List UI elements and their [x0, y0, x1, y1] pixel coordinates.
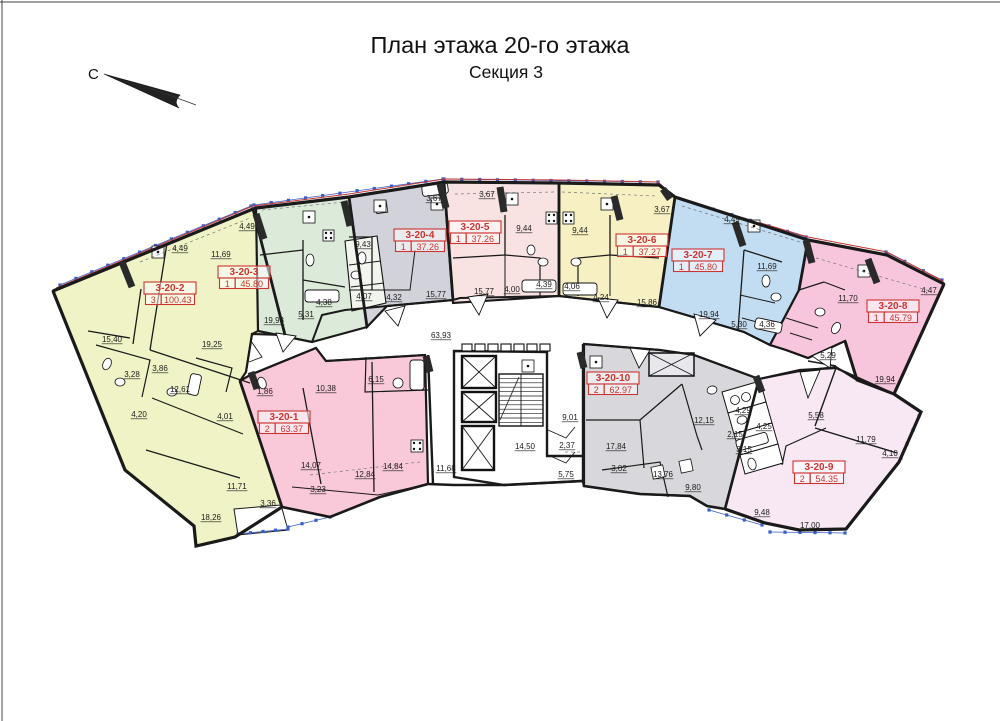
svg-text:15,77: 15,77 [426, 290, 447, 299]
svg-text:2: 2 [265, 424, 270, 434]
svg-text:9,43: 9,43 [355, 240, 371, 249]
svg-text:5,58: 5,58 [808, 411, 824, 420]
svg-text:4,07: 4,07 [356, 292, 372, 301]
svg-text:3,67: 3,67 [654, 205, 670, 214]
svg-text:19,93: 19,93 [264, 316, 285, 325]
svg-text:11,69: 11,69 [211, 250, 231, 259]
svg-text:4,25: 4,25 [756, 422, 772, 431]
svg-text:6,15: 6,15 [368, 375, 384, 384]
svg-text:План этажа 20-го этажа: План этажа 20-го этажа [371, 32, 631, 58]
svg-text:3: 3 [151, 295, 156, 305]
svg-text:13,76: 13,76 [653, 470, 674, 479]
svg-text:3,67: 3,67 [426, 194, 442, 203]
svg-text:4,49: 4,49 [724, 215, 740, 224]
svg-text:14,50: 14,50 [515, 442, 536, 451]
svg-text:4,29: 4,29 [735, 406, 751, 415]
svg-text:1: 1 [225, 279, 230, 289]
svg-text:12,84: 12,84 [355, 470, 376, 479]
svg-text:19,94: 19,94 [875, 375, 896, 384]
svg-text:4,32: 4,32 [386, 293, 402, 302]
svg-text:9,44: 9,44 [516, 224, 532, 233]
svg-text:37.27: 37.27 [639, 247, 662, 257]
svg-text:4,01: 4,01 [217, 412, 233, 421]
svg-text:3-20-5: 3-20-5 [461, 222, 490, 233]
svg-text:1: 1 [401, 242, 406, 252]
svg-text:62.97: 62.97 [610, 385, 633, 395]
svg-text:11,69: 11,69 [757, 262, 777, 271]
svg-text:3-20-3: 3-20-3 [230, 267, 259, 278]
svg-text:12,61: 12,61 [170, 385, 191, 394]
svg-text:4,06: 4,06 [564, 282, 580, 291]
svg-text:2: 2 [800, 474, 805, 484]
svg-text:14,84: 14,84 [383, 462, 404, 471]
svg-text:63.37: 63.37 [281, 424, 304, 434]
svg-text:3-20-6: 3-20-6 [628, 235, 657, 246]
svg-text:1: 1 [874, 313, 879, 323]
svg-text:45.79: 45.79 [890, 313, 913, 323]
svg-text:4,39: 4,39 [536, 280, 552, 289]
svg-text:3-20-4: 3-20-4 [406, 230, 435, 241]
svg-text:4,24: 4,24 [593, 293, 609, 302]
svg-text:37.26: 37.26 [417, 242, 440, 252]
svg-text:3-20-8: 3-20-8 [879, 301, 908, 312]
svg-text:5,30: 5,30 [731, 320, 747, 329]
svg-text:2,37: 2,37 [559, 441, 575, 450]
svg-text:3-20-9: 3-20-9 [805, 462, 834, 473]
svg-text:4,47: 4,47 [921, 286, 937, 295]
svg-text:9,48: 9,48 [754, 508, 770, 517]
svg-text:19,94: 19,94 [699, 310, 720, 319]
svg-text:17,00: 17,00 [800, 521, 821, 530]
svg-text:С: С [88, 66, 99, 83]
svg-text:3-20-10: 3-20-10 [596, 373, 631, 384]
svg-text:15,86: 15,86 [637, 298, 658, 307]
svg-text:4,49: 4,49 [172, 244, 188, 253]
svg-text:5,29: 5,29 [820, 351, 836, 360]
svg-text:1,86: 1,86 [257, 387, 273, 396]
svg-text:Секция 3: Секция 3 [469, 62, 543, 82]
svg-text:18,26: 18,26 [201, 513, 222, 522]
svg-text:3-20-7: 3-20-7 [684, 250, 713, 261]
svg-text:5,31: 5,31 [298, 310, 314, 319]
svg-text:9,44: 9,44 [572, 226, 588, 235]
svg-text:2: 2 [594, 385, 599, 395]
svg-text:3,02: 3,02 [611, 464, 627, 473]
svg-text:11,70: 11,70 [838, 294, 858, 303]
svg-text:1: 1 [456, 234, 461, 244]
svg-text:3,15: 3,15 [736, 445, 752, 454]
svg-text:3,36: 3,36 [260, 499, 276, 508]
svg-text:3,28: 3,28 [124, 370, 140, 379]
svg-text:37.26: 37.26 [472, 234, 495, 244]
svg-text:12,15: 12,15 [694, 416, 715, 425]
svg-text:4,36: 4,36 [759, 320, 775, 329]
svg-text:4,20: 4,20 [131, 410, 147, 419]
svg-text:3,86: 3,86 [152, 364, 168, 373]
svg-text:15,40: 15,40 [102, 335, 123, 344]
svg-text:4,49: 4,49 [239, 222, 255, 231]
svg-text:14,07: 14,07 [301, 461, 322, 470]
svg-text:54.35: 54.35 [816, 474, 839, 484]
svg-text:4,10: 4,10 [882, 449, 898, 458]
svg-text:5,75: 5,75 [558, 470, 574, 479]
svg-text:9,80: 9,80 [685, 483, 701, 492]
svg-text:11,68: 11,68 [436, 464, 456, 473]
svg-text:3-20-2: 3-20-2 [156, 283, 185, 294]
svg-text:19,25: 19,25 [202, 340, 223, 349]
svg-text:1: 1 [679, 262, 684, 272]
svg-text:100.43: 100.43 [164, 295, 192, 305]
svg-text:10,38: 10,38 [316, 384, 337, 393]
svg-text:45.80: 45.80 [695, 262, 718, 272]
svg-text:1: 1 [623, 247, 628, 257]
svg-text:11,79: 11,79 [856, 435, 876, 444]
svg-text:15,77: 15,77 [474, 287, 495, 296]
svg-text:3,67: 3,67 [479, 190, 495, 199]
svg-text:3-20-1: 3-20-1 [270, 412, 299, 423]
svg-text:3,23: 3,23 [310, 485, 326, 494]
svg-text:11,71: 11,71 [227, 482, 247, 491]
svg-text:9,01: 9,01 [562, 413, 578, 422]
svg-text:17,84: 17,84 [606, 442, 627, 451]
svg-text:4,38: 4,38 [316, 298, 332, 307]
svg-text:2,15: 2,15 [727, 430, 743, 439]
svg-text:4,00: 4,00 [504, 285, 520, 294]
svg-text:63,93: 63,93 [431, 331, 452, 340]
svg-text:45.80: 45.80 [241, 279, 264, 289]
